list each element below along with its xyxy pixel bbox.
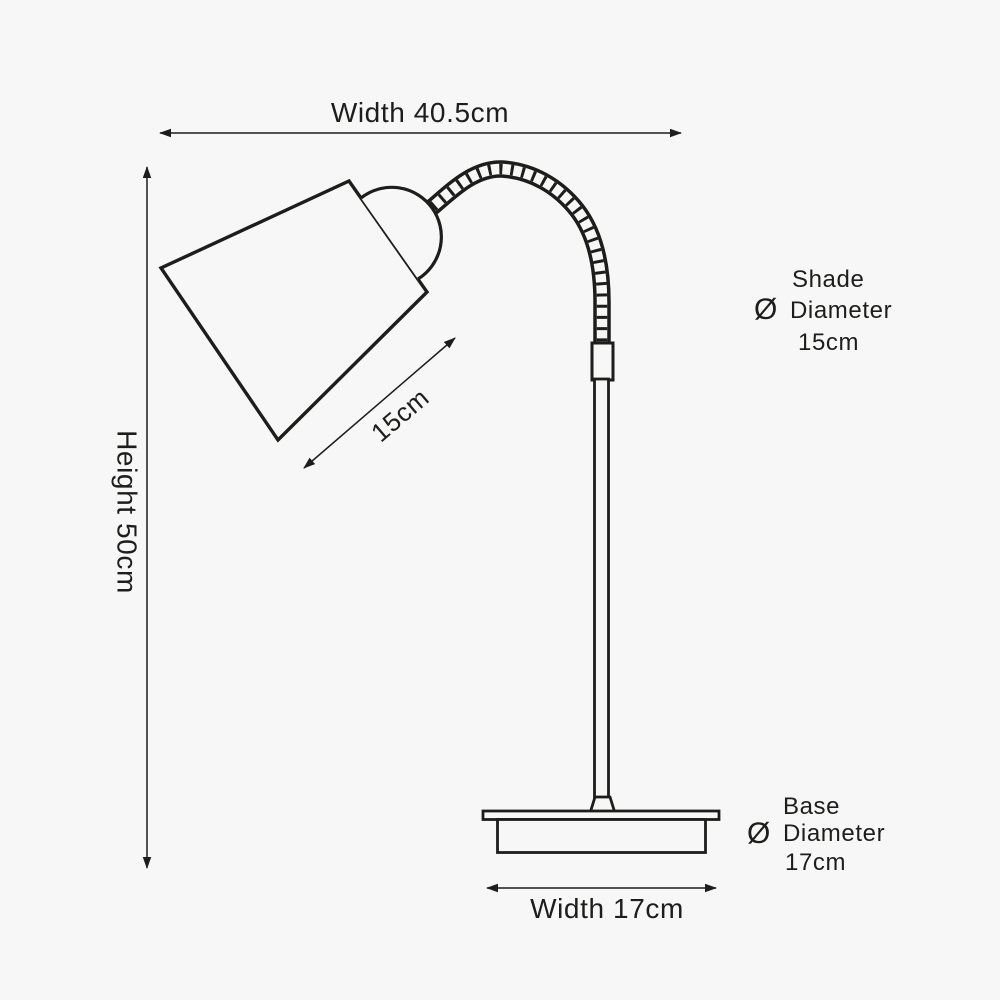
overall-width-label: Width 40.5cm xyxy=(331,97,509,128)
diameter-icon: Ø xyxy=(747,817,771,850)
shade-callout-title: Shade xyxy=(792,266,864,293)
lamp-dimension-diagram: Width 40.5cm Height 50cm 15cm Width 17cm… xyxy=(0,0,1000,1000)
gooseneck-arm xyxy=(424,169,602,346)
shade-callout-property: Diameter xyxy=(790,297,892,324)
diameter-icon: Ø xyxy=(754,293,778,326)
stem-foot xyxy=(591,797,615,812)
lamp-stem xyxy=(595,379,609,800)
base-diameter-annotation: Base Ø Diameter 17cm xyxy=(747,793,885,876)
base-body xyxy=(498,820,706,853)
base-callout-property: Diameter xyxy=(783,820,885,847)
shade-diameter-annotation: Shade Ø Diameter 15cm xyxy=(754,266,892,356)
lamp-base xyxy=(483,811,719,853)
base-callout-title: Base xyxy=(783,793,840,820)
stem-collar xyxy=(592,343,613,380)
shade-callout-value: 15cm xyxy=(798,329,859,356)
base-callout-value: 17cm xyxy=(785,849,846,876)
base-width-label: Width 17cm xyxy=(530,893,684,924)
overall-height-label: Height 50cm xyxy=(112,430,143,594)
shade-width-label: 15cm xyxy=(365,382,435,448)
lamp-drawing xyxy=(161,169,719,853)
diagram-canvas: Width 40.5cm Height 50cm 15cm Width 17cm… xyxy=(0,0,1000,1000)
